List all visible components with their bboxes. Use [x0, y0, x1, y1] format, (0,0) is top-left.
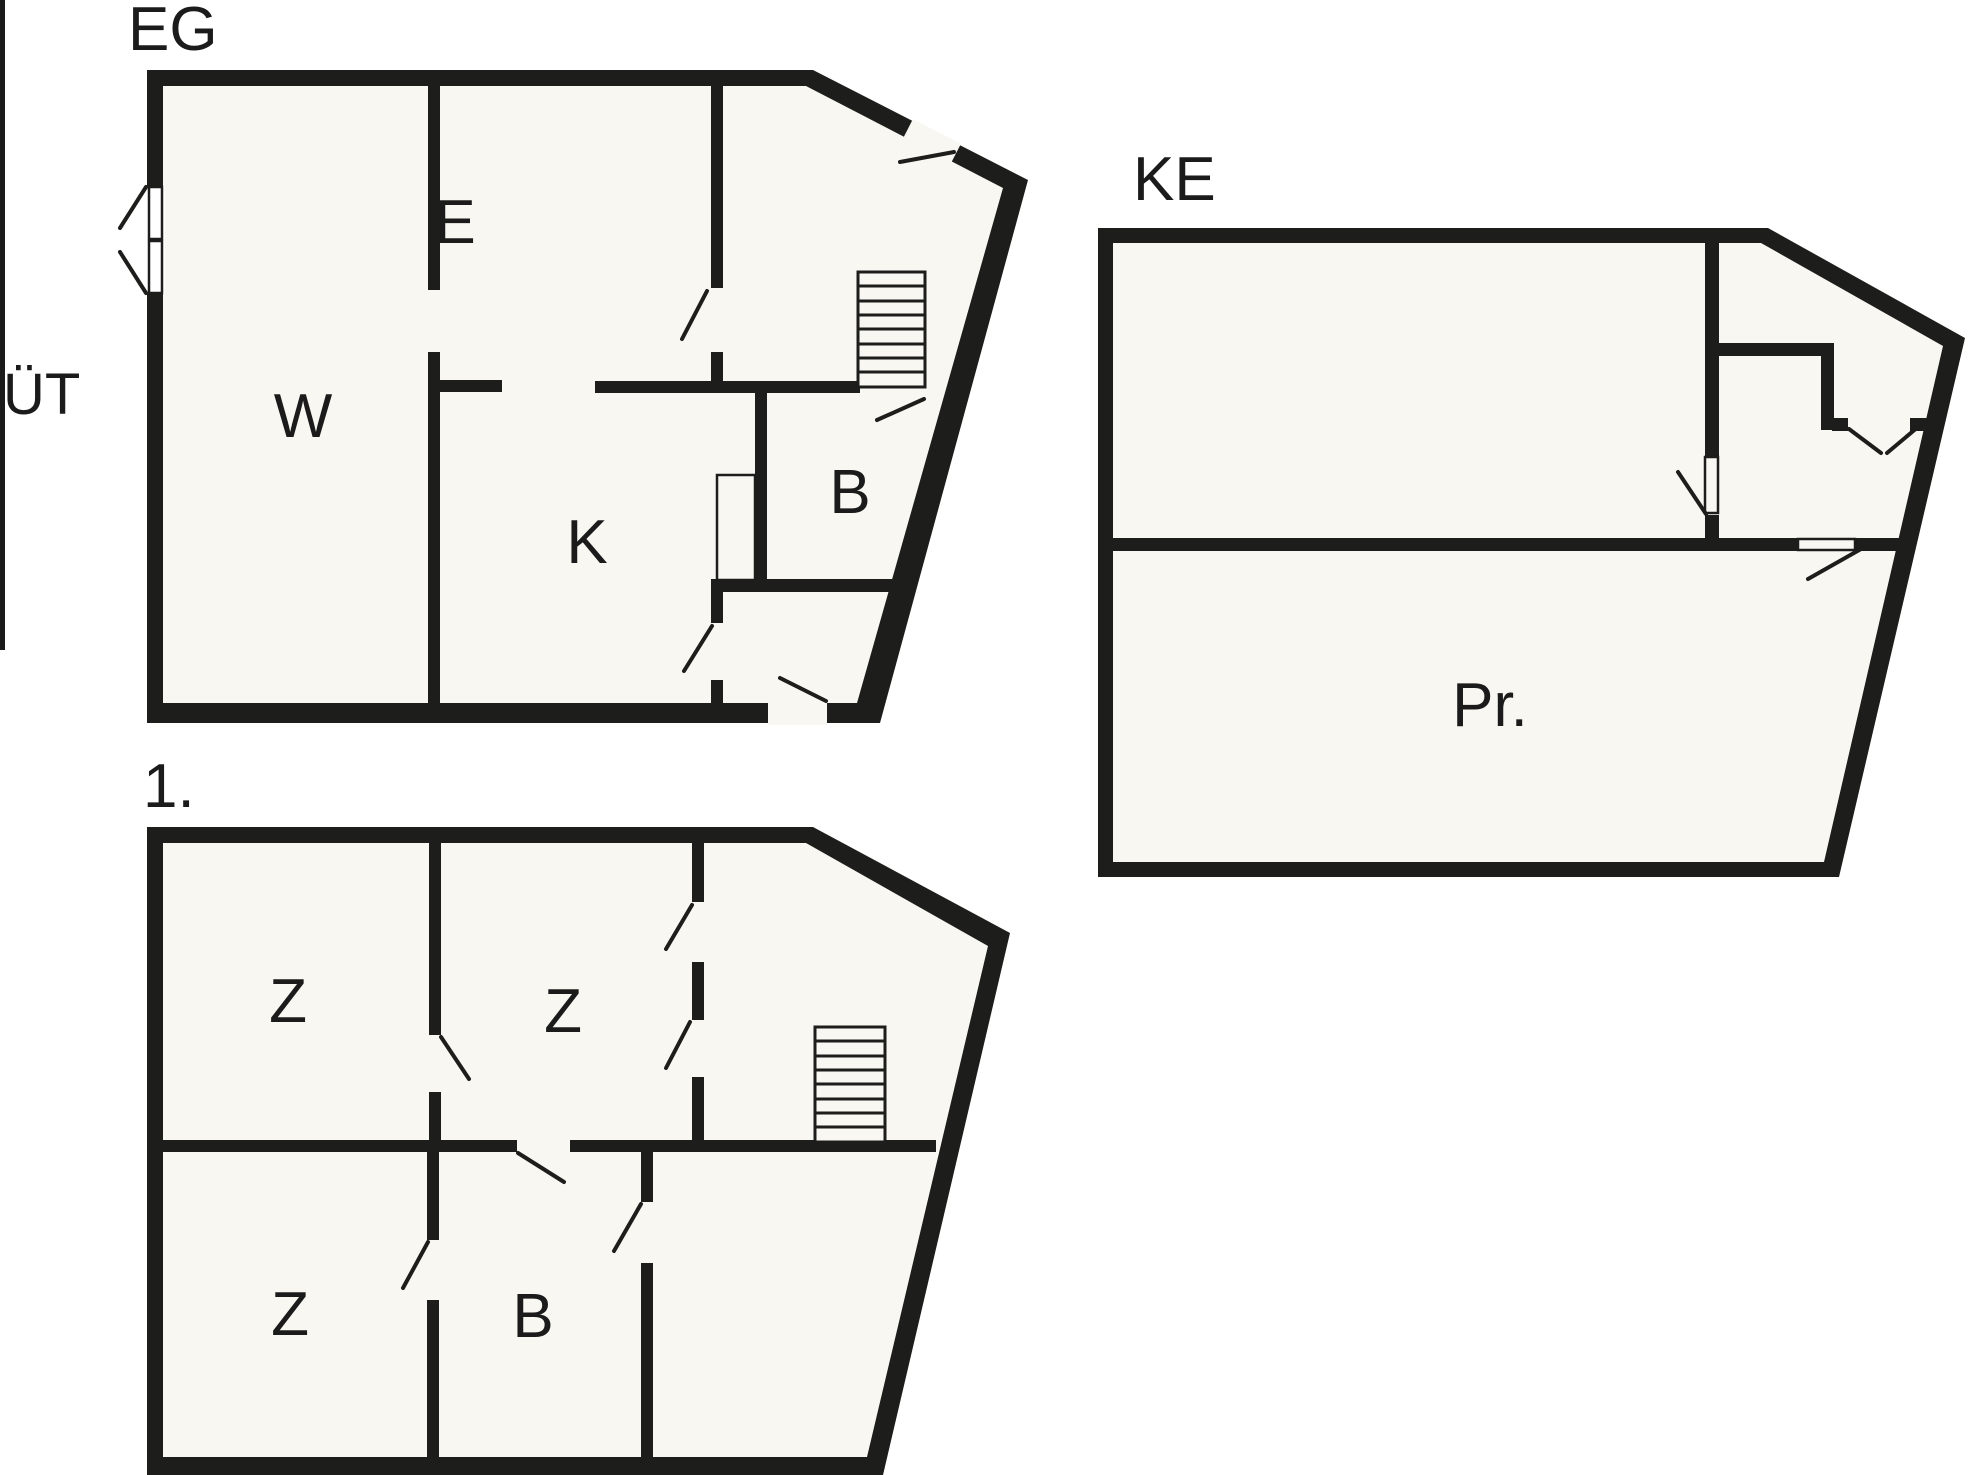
ke-floor [1098, 228, 1965, 877]
ke-door-leaf-vertical [1705, 457, 1718, 513]
first-room-label-z2: Z [544, 981, 582, 1043]
eg-plan [120, 70, 1028, 725]
eg-room-label-k: K [566, 512, 607, 574]
floor-plan-drawing [0, 0, 1980, 1475]
eg-plan-title: EG [128, 0, 218, 64]
eg-room-label-b: B [829, 462, 870, 524]
exterior-terrace-label: ÜT [3, 362, 80, 429]
eg-room-label-w: W [274, 386, 333, 448]
page-edge-strip [0, 0, 5, 650]
first-room-label-b: B [512, 1286, 553, 1348]
eg-terrace-door-leaf-top [149, 187, 162, 239]
floor-plan-sheet: EG KE 1. ÜT W E K B Pr. Z Z Z B [0, 0, 1980, 1475]
eg-entrance-door-opening [768, 701, 827, 725]
ke-plan [1098, 228, 1965, 877]
ke-room-label-pr: Pr. [1452, 675, 1528, 737]
ke-door-leaf-horizontal [1798, 539, 1855, 550]
eg-staircase [858, 272, 925, 387]
first-room-label-z1: Z [269, 971, 307, 1033]
eg-room-label-e: E [434, 192, 475, 254]
ke-plan-title: KE [1133, 146, 1216, 214]
first-room-label-z3: Z [271, 1284, 309, 1346]
first-floor-plan [147, 827, 1010, 1475]
first-plan-title: 1. [143, 753, 195, 821]
eg-kitchen-door-leaf [717, 475, 755, 580]
first-staircase [815, 1027, 885, 1142]
eg-terrace-door-leaf-bottom [149, 241, 162, 293]
